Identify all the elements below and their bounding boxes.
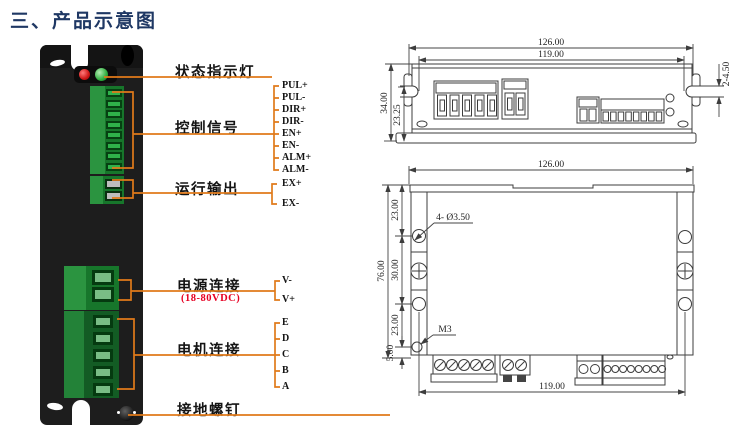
power-terminal-face [64, 266, 86, 310]
pin-label-alm-plus: ALM+ [282, 153, 311, 163]
control-terminal [106, 142, 122, 150]
callout-leader-lines [104, 77, 390, 415]
motor-terminal [93, 383, 113, 396]
pin-label-ex-minus: EX- [282, 199, 299, 209]
screw-highlight [117, 411, 120, 414]
motor-terminal [93, 366, 113, 379]
green-led-icon [95, 68, 108, 81]
front-view-5screw-block [435, 360, 494, 371]
power-voltage-note: (18-80VDC) [181, 293, 240, 304]
top-view-8pin-cells [603, 112, 662, 121]
dim-top-slot: 2-4.50 [722, 61, 732, 86]
control-terminal [106, 121, 122, 129]
pin-label-a: A [282, 382, 289, 392]
bottom-mount-notch [72, 400, 90, 425]
control-terminal [106, 163, 122, 171]
output-terminal [105, 179, 122, 189]
front-view-8pin-screws [604, 366, 666, 373]
ground-label: 接地螺钉 [177, 399, 241, 420]
ground-screw [119, 406, 134, 421]
output-terminal [105, 191, 122, 201]
control-terminal [106, 131, 122, 139]
status-led-label: 状态指示灯 [175, 61, 255, 82]
dim-top-mount-width: 119.00 [538, 50, 564, 60]
dim-top-overall-width: 126.00 [538, 38, 564, 48]
dim-front-top-offset: 23.00 [391, 199, 401, 221]
dim-front-base-offset: 5.00 [386, 344, 396, 361]
pin-label-c: C [282, 350, 289, 360]
pin-label-pul-plus: PUL+ [282, 81, 308, 91]
motor-terminal-face [64, 311, 84, 398]
output-terminal-face [90, 176, 103, 204]
control-terminal [106, 110, 122, 118]
control-signal-label: 控制信号 [175, 117, 239, 138]
page-title: 三、产品示意图 [10, 6, 157, 33]
front-view-drawing: 126.00 23.00 30.00 23.00 5.00 76.00 119.… [377, 160, 694, 396]
pin-label-b: B [282, 366, 289, 376]
pin-label-e: E [282, 318, 289, 328]
pin-label-en-minus: EN- [282, 141, 299, 151]
motor-terminal [93, 349, 113, 362]
dim-top-inner-height: 23.25 [393, 104, 403, 126]
top-right-hole [121, 45, 134, 66]
dim-top-overall-height: 34.00 [380, 92, 390, 114]
pin-label-ex-plus: EX+ [282, 179, 302, 189]
pin-label-pul-minus: PUL- [282, 93, 305, 103]
screw-highlight [133, 411, 136, 414]
dim-front-bottom-offset: 23.00 [391, 314, 401, 336]
dim-front-overall-width: 126.00 [538, 160, 564, 170]
motor-terminal [93, 332, 113, 345]
power-terminal [92, 287, 114, 302]
top-view-5slot-cells [438, 95, 497, 116]
power-terminal [92, 270, 114, 285]
product-diagram-page: 三、产品示意图 状态指示灯 控制信号 运行输出 电源连接 (18-80VDC) … [0, 0, 750, 432]
control-terminal [106, 89, 122, 97]
control-terminal-face [90, 86, 105, 174]
dim-front-mid-span: 30.00 [391, 259, 401, 281]
pin-label-en-plus: EN+ [282, 129, 302, 139]
label-thread-m3: M3 [438, 325, 451, 335]
pin-label-v-plus: V+ [282, 295, 295, 305]
motor-terminal [93, 315, 113, 328]
pin-label-dir-plus: DIR+ [282, 105, 306, 115]
red-led-icon [79, 69, 90, 80]
output-label: 运行输出 [175, 178, 239, 199]
control-terminal [106, 100, 122, 108]
pin-label-d: D [282, 334, 289, 344]
motor-label: 电机连接 [177, 339, 241, 360]
pin-label-v-minus: V- [282, 276, 292, 286]
dim-front-overall-height: 76.00 [377, 260, 387, 282]
dim-front-mount-width: 119.00 [539, 382, 565, 392]
pin-label-dir-minus: DIR- [282, 117, 304, 127]
top-view-drawing: 126.00 119.00 34.00 23.25 2-4.50 [380, 38, 732, 143]
pin-label-alm-minus: ALM- [282, 165, 309, 175]
label-mount-holes: 4- Ø3.50 [436, 213, 470, 223]
control-terminal [106, 152, 122, 160]
